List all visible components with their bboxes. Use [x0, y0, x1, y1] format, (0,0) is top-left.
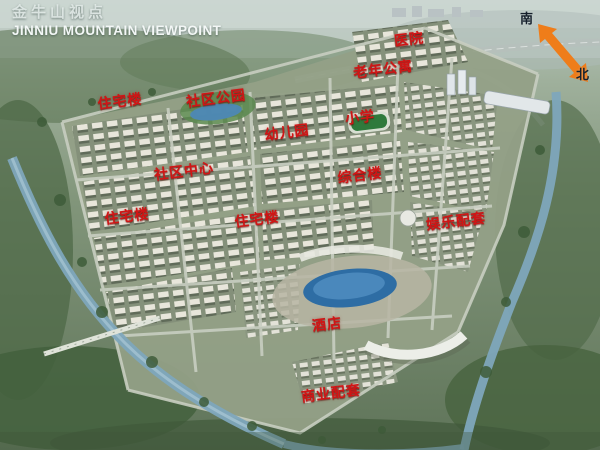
map-label: 医院 — [393, 27, 425, 51]
aerial-viewpoint-rendering: 金牛山视点 JINNIU MOUNTAIN VIEWPOINT 南 北 医院老年… — [0, 0, 600, 450]
map-label: 住宅楼 — [233, 206, 280, 231]
map-label: 住宅楼 — [104, 203, 151, 228]
map-label: 社区中心 — [153, 157, 215, 184]
map-label: 综合楼 — [336, 162, 383, 187]
map-label: 小学 — [344, 105, 376, 129]
map-label: 酒店 — [311, 312, 343, 336]
map-label: 幼儿园 — [263, 119, 310, 144]
map-label: 社区公园 — [185, 85, 247, 112]
map-label-layer: 医院老年公寓住宅楼社区公园幼儿园小学社区中心综合楼住宅楼住宅楼娱乐配套酒店商业配… — [0, 0, 600, 450]
map-label: 老年公寓 — [352, 55, 414, 82]
map-label: 商业配套 — [300, 379, 362, 406]
map-label: 住宅楼 — [96, 88, 143, 113]
map-label: 娱乐配套 — [425, 207, 487, 234]
